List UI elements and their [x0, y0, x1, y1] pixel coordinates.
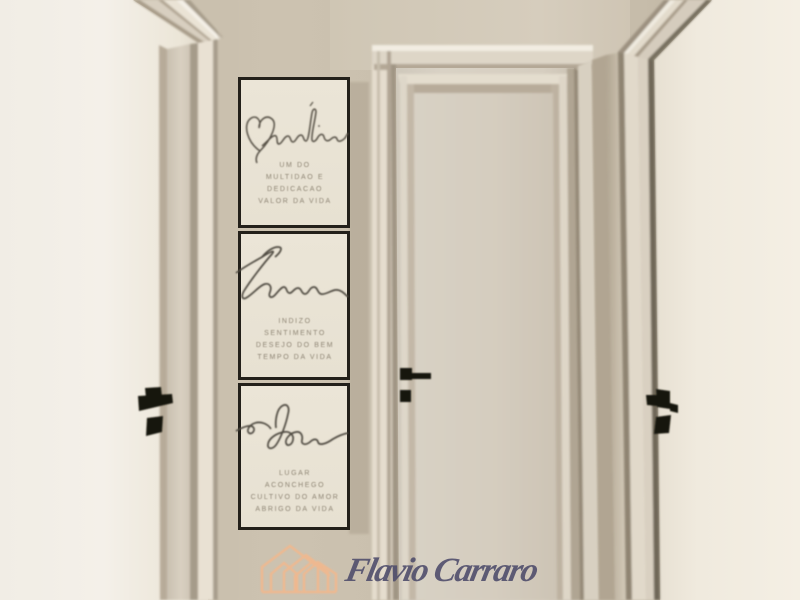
svg-text:ABRIGO DA VIDA: ABRIGO DA VIDA — [255, 506, 334, 513]
svg-text:Flavio Carraro: Flavio Carraro — [341, 551, 542, 589]
svg-text:DESEJO DO BEM: DESEJO DO BEM — [256, 342, 334, 349]
svg-text:MULTIDAO E: MULTIDAO E — [266, 174, 324, 181]
svg-text:SENTIMENTO: SENTIMENTO — [264, 330, 326, 337]
svg-text:INDIZO: INDIZO — [278, 318, 311, 325]
svg-text:DEDICACAO: DEDICACAO — [267, 186, 323, 193]
svg-text:CULTIVO DO AMOR: CULTIVO DO AMOR — [251, 494, 340, 501]
svg-text:ACONCHEGO: ACONCHEGO — [265, 482, 325, 489]
svg-text:UM DO: UM DO — [279, 162, 310, 169]
svg-text:LUGAR: LUGAR — [279, 470, 311, 477]
svg-text:TEMPO DA VIDA: TEMPO DA VIDA — [257, 354, 332, 361]
svg-text:VALOR DA VIDA: VALOR DA VIDA — [258, 198, 332, 205]
